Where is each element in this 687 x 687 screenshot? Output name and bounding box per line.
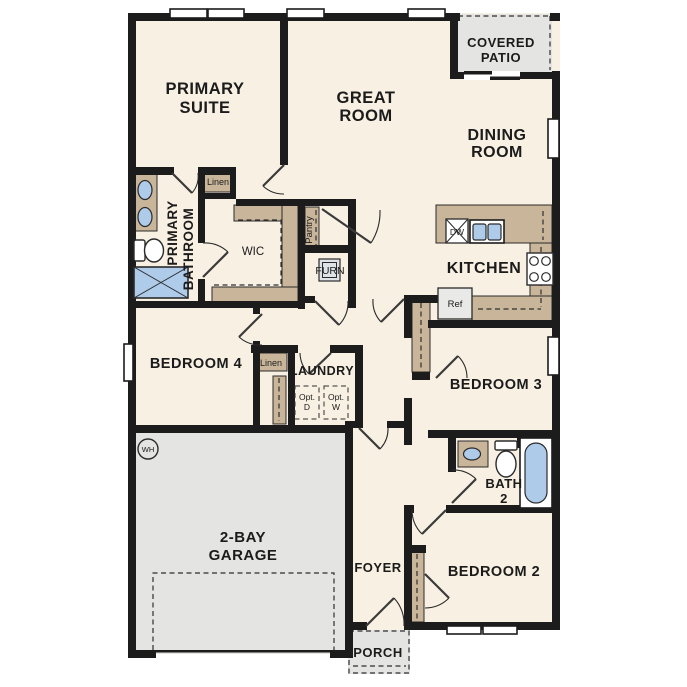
label-garage-2: GARAGE xyxy=(209,547,278,564)
window-bedroom4 xyxy=(124,344,133,381)
floor-plan-drawing: PRIMARY SUITE GREAT ROOM COVERED PATIO D… xyxy=(0,0,687,687)
label-bath2-2: 2 xyxy=(500,491,508,506)
label-primary-bathroom: PRIMARY xyxy=(165,200,180,265)
label-wic: WIC xyxy=(242,246,264,258)
label-opt-dryer-2: D xyxy=(304,402,310,412)
window-primary-suite-2 xyxy=(208,9,244,18)
window-great-room xyxy=(287,9,324,18)
label-dishwasher: DW xyxy=(450,227,464,237)
label-pantry: Pantry xyxy=(304,216,315,244)
label-water-heater: WH xyxy=(142,445,155,454)
label-great-room: GREAT xyxy=(336,89,395,107)
label-garage: 2-BAY xyxy=(220,529,266,546)
label-covered-patio: COVERED xyxy=(467,35,535,50)
toilet-bath2 xyxy=(495,441,517,477)
label-covered-patio-2: PATIO xyxy=(481,50,521,65)
window-bedroom2-2 xyxy=(483,626,517,634)
window-bedroom2-1 xyxy=(447,626,481,634)
label-primary-bathroom-2: BATHROOM xyxy=(181,208,196,291)
sliding-door-panel-1 xyxy=(464,71,492,75)
label-dining-room: DINING xyxy=(468,127,527,144)
label-linen-primary: Linen xyxy=(207,177,229,187)
window-primary-suite-1 xyxy=(170,9,207,18)
toilet-primary xyxy=(134,239,164,262)
label-furnace: FURN xyxy=(315,265,344,277)
window-dining-right xyxy=(548,119,559,158)
label-kitchen: KITCHEN xyxy=(447,260,522,277)
label-linen-hall: Linen xyxy=(260,358,282,368)
label-bedroom3: BEDROOM 3 xyxy=(450,377,542,393)
label-laundry: LAUNDRY xyxy=(290,364,354,378)
label-primary-suite-2: SUITE xyxy=(179,99,230,117)
shower-primary xyxy=(134,267,188,298)
vanity-sink-2 xyxy=(138,208,152,227)
range-stove xyxy=(527,253,553,285)
label-opt-washer-2: W xyxy=(332,402,340,412)
label-bath2: BATH xyxy=(485,476,522,491)
bath2-sink xyxy=(464,448,481,460)
label-bedroom2: BEDROOM 2 xyxy=(448,564,540,580)
label-refrigerator: Ref xyxy=(448,299,463,310)
label-porch: PORCH xyxy=(353,645,402,660)
window-bedroom3 xyxy=(548,337,559,375)
wic-shelf-bottom xyxy=(212,287,298,303)
vanity-sink-1 xyxy=(138,181,152,200)
sliding-door-panel-2 xyxy=(490,77,520,81)
floor-plan: PRIMARY SUITE GREAT ROOM COVERED PATIO D… xyxy=(0,0,687,687)
label-bedroom4: BEDROOM 4 xyxy=(150,356,242,372)
label-opt-washer: Opt. xyxy=(328,392,344,402)
label-foyer: FOYER xyxy=(354,560,401,575)
kitchen-sink xyxy=(470,220,504,243)
label-primary-suite: PRIMARY xyxy=(166,80,245,98)
label-great-room-2: ROOM xyxy=(339,107,392,125)
bathtub xyxy=(520,438,552,508)
bedroom2-closet xyxy=(410,551,424,622)
bedroom3-closet xyxy=(412,300,430,372)
window-dining-top xyxy=(408,9,445,18)
label-dining-room-2: ROOM xyxy=(471,144,523,161)
label-opt-dryer: Opt. xyxy=(299,392,315,402)
